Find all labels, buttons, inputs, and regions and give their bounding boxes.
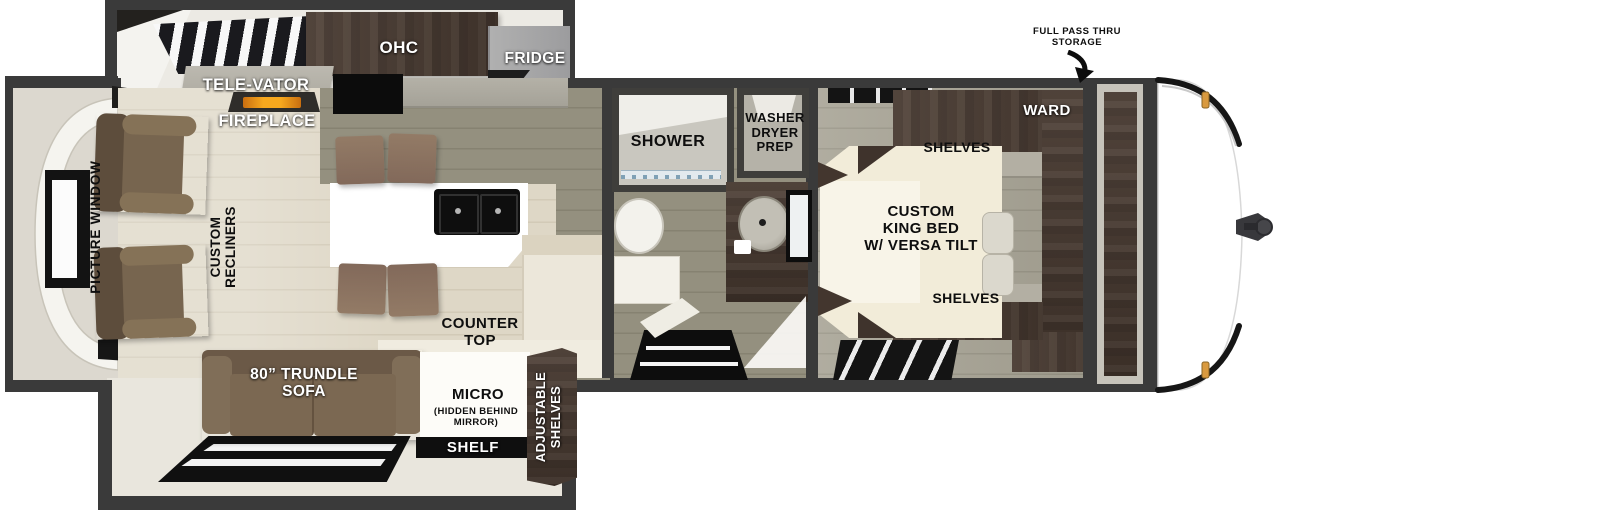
- rear-window-pane: [52, 180, 77, 278]
- label-shelves-bottom: SHELVES: [906, 291, 1026, 307]
- entry-door-steps: [630, 330, 748, 380]
- pass-thru-arrow-icon: [1060, 50, 1100, 84]
- label-washer-dryer-prep: WASHER DRYER PREP: [715, 111, 835, 155]
- recliner-2: [93, 244, 208, 340]
- bath-cabinet: [614, 256, 680, 304]
- recliner-2-arm-bottom: [122, 317, 197, 339]
- sink-basin-left: [439, 194, 479, 234]
- island-chair-1: [335, 135, 385, 185]
- marker-light-bottom-icon: [1202, 362, 1209, 378]
- label-shelves-top: SHELVES: [897, 140, 1017, 156]
- label-fridge: FRIDGE: [485, 50, 585, 67]
- label-counter-top: COUNTER TOP: [410, 316, 550, 350]
- faucet-dot-right: [495, 208, 501, 214]
- toilet-icon: [614, 198, 664, 254]
- sink-basin-right: [480, 194, 518, 234]
- label-shelf: SHELF: [447, 439, 499, 456]
- recliner-1-arm-bottom: [119, 192, 194, 215]
- tv-range-box: [333, 74, 403, 114]
- island-chair-2: [387, 133, 437, 184]
- label-pass-thru-storage: FULL PASS THRU STORAGE: [1007, 27, 1147, 48]
- bath-mirror-pane: [790, 195, 808, 257]
- sofa-slide-wall-left: [98, 380, 112, 508]
- floorplan-canvas: SHELF: [0, 0, 1600, 511]
- bedroom-window-bottom: [833, 340, 959, 380]
- shower-glass-shelf: [621, 170, 721, 179]
- entry-step-line-1: [646, 346, 730, 350]
- label-micro: MICRO: [428, 387, 528, 404]
- label-micro-note: (HIDDEN BEHIND MIRROR): [406, 407, 546, 428]
- label-ohc: OHC: [349, 38, 449, 57]
- kitchen-counter-top-run: [400, 78, 568, 108]
- label-adjustable-shelves: ADJUSTABLE SHELVES: [534, 347, 570, 487]
- bedroom-front-wall: [1083, 88, 1097, 378]
- label-televator: TELE-VATOR: [186, 76, 326, 94]
- shelf-bar: SHELF: [416, 437, 530, 458]
- label-king-bed: CUSTOM KING BED W/ VERSA TILT: [831, 204, 1011, 254]
- label-trundle-sofa: 80” TRUNDLE SOFA: [214, 366, 394, 401]
- island-chair-4: [387, 263, 439, 317]
- pass-thru-storage-compartment: [1097, 84, 1143, 384]
- double-sink-icon: [434, 189, 520, 235]
- recliner-1-arm-top: [122, 114, 197, 137]
- label-fireplace: FIREPLACE: [192, 112, 342, 130]
- bath-mirror: [786, 190, 812, 262]
- fireplace-flame-icon: [243, 97, 301, 108]
- bottom-wall-main: [575, 378, 1158, 392]
- vanity-soap: [734, 240, 751, 254]
- label-ward: WARD: [997, 103, 1097, 120]
- front-cap: [1152, 70, 1287, 400]
- label-custom-recliners: CUSTOM RECLINERS: [208, 172, 248, 322]
- counter-right-edge: [522, 235, 610, 255]
- shower-wall-highlight: [619, 95, 727, 135]
- island-chair-3: [337, 263, 387, 315]
- faucet-dot-left: [455, 208, 461, 214]
- marker-light-top-icon: [1202, 92, 1209, 108]
- pass-thru-storage-interior: [1104, 92, 1137, 376]
- vanity-faucet-dot: [759, 219, 766, 226]
- sofa-slide-wall-bottom: [98, 496, 576, 510]
- recliner-2-arm-top: [119, 244, 194, 266]
- rug-stripes: [160, 444, 404, 474]
- entry-step-line-2: [640, 362, 738, 366]
- label-picture-window: PICTURE WINDOW: [88, 132, 110, 322]
